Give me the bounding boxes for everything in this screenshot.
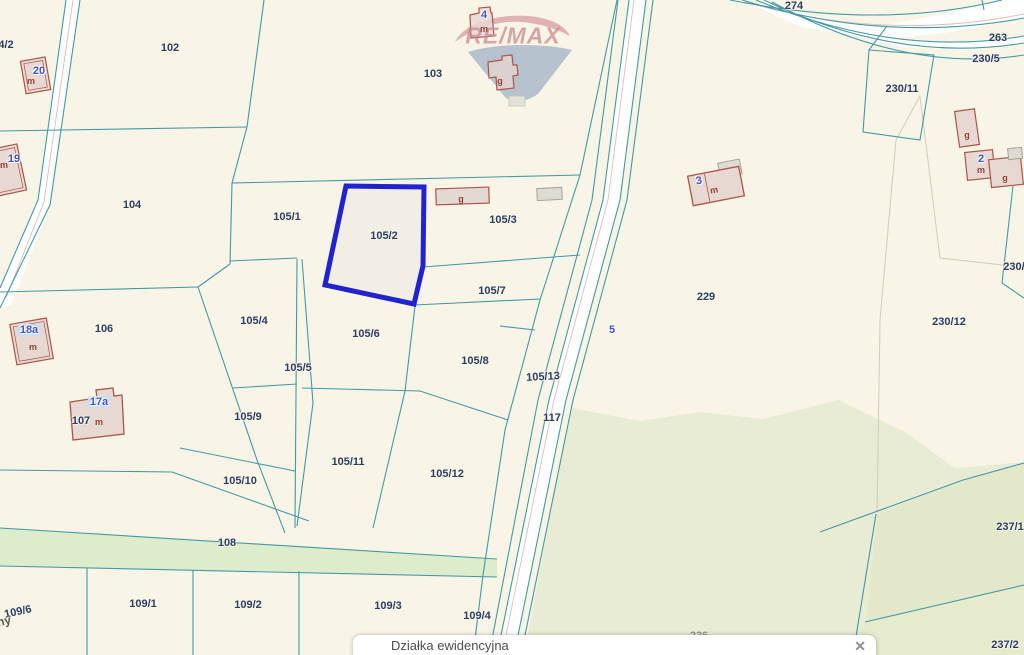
parcel-label-102: 102 [161,42,179,54]
parcel-label-105-11: 105/11 [331,456,364,468]
parcel-label-105-5: 105/5 [284,362,312,374]
building-mark-m-18a: m [29,342,37,352]
parcel-label-104: 104 [123,199,141,211]
address-label-4: 4 [481,9,487,21]
building-mark-m-19: m [0,160,8,170]
parcel-label-105-2: 105/2 [370,230,398,242]
building-mark-g-230b: g [1002,173,1008,183]
outbuilding-gray-105-3 [537,187,563,200]
address-label-19: 19 [8,153,20,165]
parcel-label-103: 103 [424,68,442,80]
parcel-label-106: 106 [95,323,113,335]
parcel-label-105-3: 105/3 [489,214,517,226]
parcel-label-237-2: 237/2 [991,639,1019,651]
building-mark-m-3: m [709,184,719,195]
parcel-label-117: 117 [543,412,561,424]
selected-parcel-105-2[interactable] [325,186,424,304]
building-mark-g-230: g [964,130,970,140]
building-mark-m-4: m [480,24,488,34]
parcel-label-230-5: 230/5 [972,53,1000,65]
building-g-230 [955,109,980,147]
address-label-5: 5 [609,324,615,336]
layer-name-text: Działka ewidencyjna [391,635,509,655]
parcel-label-109-2: 109/2 [234,599,262,611]
parcel-label-105-4: 105/4 [240,315,268,327]
parcel-label-105-8: 105/8 [461,355,489,367]
building-mark-m-20: m [27,76,35,86]
building-mark-m-17a: m [95,417,103,427]
address-label-17a: 17a [88,396,110,408]
parcel-label-237-1: 237/1 [996,521,1024,533]
parcel-label-105-1: 105/1 [273,211,301,223]
parcel-label-109-3: 109/3 [374,600,402,612]
parcel-label-107: 107 [72,415,90,427]
parcel-label-105-9: 105/9 [234,411,262,423]
parcel-label-105-13: 105/13 [526,370,560,384]
parcel-label-105-7: 105/7 [478,285,506,297]
parcel-label-230-12: 230/12 [932,316,966,328]
close-icon[interactable]: ✕ [854,636,866,655]
parcel-label-4-2: 4/2 [0,39,14,51]
parcel-label-230-x: 230/ [1003,261,1024,273]
parcel-label-274: 274 [785,0,803,12]
address-label-18a: 18a [18,324,40,336]
parcel-label-229: 229 [697,291,715,303]
building-mark-m-2: m [977,165,985,175]
parcel-label-105-12: 105/12 [430,468,464,480]
parcel-label-109-4: 109/4 [463,610,491,622]
parcel-label-263: 263 [989,32,1007,44]
layer-info-bar: Działka ewidencyjna ✕ [353,635,876,655]
parcel-label-105-6: 105/6 [352,328,380,340]
map-geometry-layer [0,0,1024,655]
parcel-label-230-11: 230/11 [885,83,918,95]
cadastral-map-canvas[interactable]: RE/MAX 4/2 102 103 274 263 230/5 230/11 … [0,0,1024,655]
parcel-label-105-10: 105/10 [223,475,257,487]
address-label-2: 2 [978,153,984,165]
building-mark-g-103: g [497,76,503,86]
balloon-basket [509,96,525,106]
parcel-label-108: 108 [218,537,236,549]
parcel-label-109-1: 109/1 [129,598,157,610]
building-mark-g-105-3: g [458,194,464,204]
